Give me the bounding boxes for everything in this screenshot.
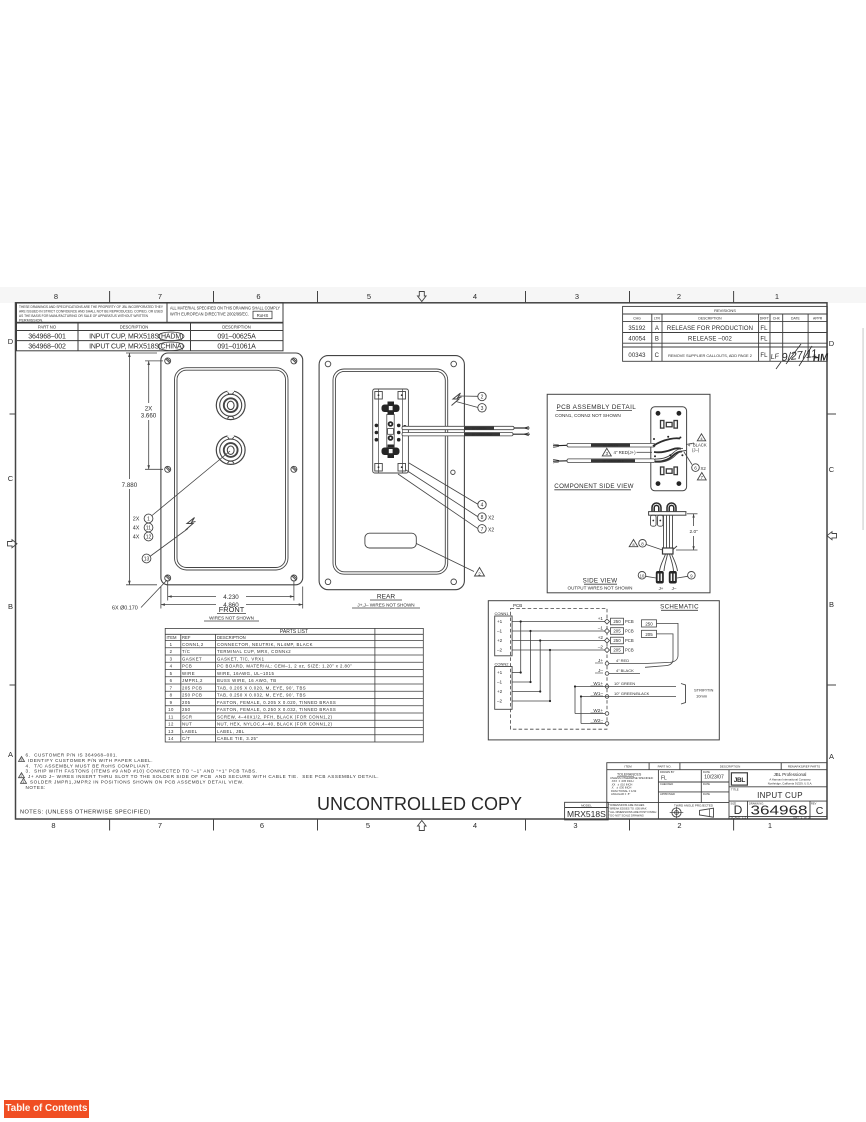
svg-text:6. CUSTOMER P/N IS 364968–001: 6. CUSTOMER P/N IS 364968–001. [26,753,118,758]
svg-text:REMOVE SUPPLIER CALLOUTS, ADD: REMOVE SUPPLIER CALLOUTS, ADD PAGE 2 [668,353,752,358]
svg-text:250: 250 [613,619,621,624]
svg-text:WIRE, 16AWG, UL–1015: WIRE, 16AWG, UL–1015 [217,671,274,676]
svg-text:PCB: PCB [625,629,634,634]
svg-text:C: C [655,353,660,359]
svg-text:9: 9 [170,700,173,705]
svg-text:FL: FL [760,337,768,343]
svg-text:THESE DRAWINGS AND SPECIFICATI: THESE DRAWINGS AND SPECIFICATIONS ARE TH… [19,305,163,309]
svg-text:C: C [816,805,824,817]
svg-text:X2: X2 [701,466,707,471]
svg-text:BUSS WIRE, 16 AWG, TB: BUSS WIRE, 16 AWG, TB [217,678,277,683]
svg-text:PCB: PCB [625,648,634,653]
svg-text:TERMINAL CUP, MRX, CONNx2: TERMINAL CUP, MRX, CONNx2 [217,649,291,654]
svg-text:14: 14 [168,736,174,741]
svg-text:PCB: PCB [513,603,522,608]
svg-text:GASKET, T/C, VRX1: GASKET, T/C, VRX1 [217,656,265,661]
svg-text:6: 6 [256,292,260,301]
svg-text:J+: J+ [659,586,664,591]
svg-text:THIRD ANGLE PROJECTED: THIRD ANGLE PROJECTED [674,804,714,808]
svg-text:–2: –2 [497,648,503,653]
svg-text:2: 2 [677,821,681,830]
svg-text:WIRES NOT SHOWN: WIRES NOT SHOWN [209,616,254,621]
svg-text:DRAWN BY: DRAWN BY [660,770,675,774]
svg-text:UNCONTROLLED COPY: UNCONTROLLED COPY [317,794,522,814]
svg-text:JBL: JBL [734,777,746,784]
svg-text:00343: 00343 [628,353,646,359]
svg-text:TAB, 0.205 X 0.020, M, EYE, 90: TAB, 0.205 X 0.020, M, EYE, 90’, TBS [217,685,306,690]
svg-text:D: D [8,337,14,346]
svg-text:+2: +2 [497,689,503,694]
svg-text:OUTPUT WIRES NOT SHOWN: OUTPUT WIRES NOT SHOWN [568,586,633,591]
svg-text:4” RED: 4” RED [616,658,629,663]
svg-text:DESCRIPTION: DESCRIPTION [217,635,246,640]
svg-text:4. T/C ASSEMBLY MUST BE RoHS: 4. T/C ASSEMBLY MUST BE RoHS COMPLIANT. [26,763,151,768]
svg-text:STRIP/TIN: STRIP/TIN [694,688,713,693]
svg-text:LABEL: LABEL [182,729,198,734]
svg-text:8: 8 [54,292,58,301]
svg-text:REAR: REAR [377,594,396,601]
svg-text:10: 10 [168,707,174,712]
svg-text:HM: HM [812,352,829,364]
svg-text:W2+: W2+ [593,708,603,713]
svg-text:ITEM: ITEM [167,635,178,640]
svg-text:* DIMENSIONS ARE INCHES: * DIMENSIONS ARE INCHES [609,803,645,807]
svg-text:REF: REF [182,635,191,640]
svg-text:–2: –2 [497,699,503,704]
svg-text:RELEASE –002: RELEASE –002 [688,337,732,343]
svg-text:35192: 35192 [628,326,646,332]
svg-text:NOTES: (UNLESS OTHERWISE SPECI: NOTES: (UNLESS OTHERWISE SPECIFIED) [20,810,151,816]
svg-text:+2: +2 [598,635,604,640]
svg-text:+1: +1 [497,670,503,675]
svg-text:2X: 2X [145,406,153,413]
svg-text:A: A [655,326,659,332]
svg-text:DESCRIPTION: DESCRIPTION [222,325,251,330]
svg-text:4X: 4X [133,535,140,541]
svg-text:* BREAK EDGES TO .005 MAX: * BREAK EDGES TO .005 MAX [609,807,647,811]
svg-text:10” GREEN: 10” GREEN [603,444,618,448]
svg-text:X2: X2 [488,516,494,522]
svg-text:ITEM: ITEM [624,764,632,768]
svg-text:3: 3 [481,406,484,412]
svg-text:J+ AND J– WIRES INSERT THRU SL: J+ AND J– WIRES INSERT THRU SLOT TO THE … [28,774,379,779]
svg-text:COMPONENT SIDE VIEW: COMPONENT SIDE VIEW [554,483,634,490]
svg-text:11: 11 [146,526,151,532]
svg-text:J–: J– [672,586,677,591]
svg-text:CABLE TIE, 3.25”: CABLE TIE, 3.25” [217,736,258,741]
svg-text:INPUT CUP, MRX518S: INPUT CUP, MRX518S [89,343,159,350]
svg-text:SCR: SCR [182,714,192,719]
svg-text:SOLDER JMPR1,JMPR2 IN POSITION: SOLDER JMPR1,JMPR2 IN POSITIONS SHOWN ON… [30,780,244,785]
svg-text:D: D [829,339,835,348]
svg-text:RoHS: RoHS [257,313,269,318]
svg-text:1: 1 [23,780,25,784]
svg-text:–1: –1 [598,626,604,631]
svg-text:Northridge, California 91329,: Northridge, California 91329, U.S.A. [768,782,813,786]
svg-text:C: C [8,474,14,483]
svg-text:DATE: DATE [703,792,710,796]
svg-text:4: 4 [170,664,173,669]
svg-text:SCREW, 4–40X1/2, PFH, BLACK (F: SCREW, 4–40X1/2, PFH, BLACK (FOR CONN1,2… [217,714,333,719]
svg-text:C/T: C/T [182,736,190,741]
svg-text:WIRE: WIRE [182,671,195,676]
svg-text:10” GREEN/BLK: 10” GREEN/BLK [602,459,624,463]
svg-text:250: 250 [645,621,653,626]
svg-text:ANGULAR ± .5°: ANGULAR ± .5° [611,792,630,796]
svg-text:+1: +1 [497,619,503,624]
svg-text:2.0”: 2.0” [689,529,698,535]
svg-text:J–: J– [598,668,603,673]
svg-text:DESCRIPTION: DESCRIPTION [698,317,722,321]
svg-text:091–00625A: 091–00625A [217,333,256,340]
svg-text:6X Ø0.170: 6X Ø0.170 [112,606,138,612]
svg-text:10” GREEN: 10” GREEN [472,426,487,430]
svg-text:7: 7 [158,292,162,301]
svg-text:DESCRIPTION: DESCRIPTION [120,325,149,330]
svg-text:4” BLACK: 4” BLACK [616,668,634,673]
svg-text:ARE ISSUED IN STRICT CONFIDENC: ARE ISSUED IN STRICT CONFIDENCE AND SHAL… [19,310,163,314]
svg-text:TOLERANCES: TOLERANCES [617,772,642,776]
svg-text:10” GREEN: 10” GREEN [614,681,635,686]
svg-text:205: 205 [613,648,621,653]
svg-text:7: 7 [481,527,484,533]
svg-text:4: 4 [473,292,477,301]
svg-text:5: 5 [21,758,23,762]
svg-text:AS THE BASIS FOR MANUFACTURING: AS THE BASIS FOR MANUFACTURING OR SALE O… [19,314,148,318]
svg-text:W2–: W2– [594,718,604,723]
svg-text:CHG: CHG [633,317,641,321]
svg-text:13: 13 [168,729,174,734]
svg-text:–1: –1 [497,629,503,634]
svg-text:8: 8 [51,821,55,830]
svg-text:INPUT CUP: INPUT CUP [757,791,803,800]
svg-text:INPUT CUP, MRX518S: INPUT CUP, MRX518S [89,333,159,340]
svg-text:4” RED(J+): 4” RED(J+) [614,450,637,455]
svg-text:250: 250 [613,638,621,643]
svg-text:091–01061A: 091–01061A [217,343,256,350]
svg-text:DRFT: DRFT [760,317,769,321]
svg-text:+2: +2 [497,638,503,643]
svg-text:MODEL: MODEL [581,804,592,808]
svg-text:10: 10 [640,573,645,578]
svg-text:250 PCB: 250 PCB [182,693,202,698]
svg-text:APPROVED: APPROVED [660,792,675,796]
svg-text:A: A [8,750,13,759]
svg-text:5: 5 [170,671,173,676]
svg-text:13: 13 [144,557,150,563]
svg-text:B: B [829,600,834,609]
svg-text:J+: J+ [598,658,603,663]
svg-text:PCB ASSEMBLY DETAIL: PCB ASSEMBLY DETAIL [557,404,637,411]
svg-text:205: 205 [645,632,653,637]
svg-text:3: 3 [573,821,577,830]
svg-text:7: 7 [170,685,173,690]
svg-text:MRX518S: MRX518S [567,809,606,819]
svg-text:364968–001: 364968–001 [28,333,66,340]
svg-text:PC BOARD, MATERIAL: CEM–1, 2 o: PC BOARD, MATERIAL: CEM–1, 2 oz, SIZE: 1… [217,664,352,669]
svg-text:JBL Professional: JBL Professional [774,772,807,777]
svg-text:X2: X2 [488,527,494,533]
svg-text:TITLE: TITLE [731,788,739,792]
svg-text:5: 5 [366,821,370,830]
svg-text:W1–: W1– [594,691,604,696]
svg-text:CHECKED: CHECKED [660,782,673,786]
svg-text:B: B [8,602,13,611]
svg-text:SCHEMATIC: SCHEMATIC [660,604,699,611]
svg-text:J+,J– WIRES NOT SHOWN: J+,J– WIRES NOT SHOWN [357,603,414,608]
svg-text:FASTON, FEMALE, 0.205 X 0.020,: FASTON, FEMALE, 0.205 X 0.020, TINNED BR… [217,700,336,705]
svg-text:6: 6 [170,678,173,683]
svg-text:10mm: 10mm [696,694,708,699]
svg-text:6: 6 [260,821,264,830]
svg-text:(J–): (J–) [692,448,700,453]
svg-text:RELEASE FOR PRODUCTION: RELEASE FOR PRODUCTION [667,326,753,332]
svg-text:2: 2 [481,395,484,401]
svg-text:CHK: CHK [773,317,781,321]
svg-text:PART NO.: PART NO. [658,764,672,768]
svg-text:IDENTIFY CUSTOMER P/N WITH PAP: IDENTIFY CUSTOMER P/N WITH PAPER LABEL. [28,758,153,763]
svg-text:6: 6 [694,466,697,471]
svg-text:3: 3 [170,656,173,661]
svg-text:12: 12 [146,535,152,541]
svg-text:10” GREEN/BLACK: 10” GREEN/BLACK [614,691,650,696]
svg-text:1: 1 [147,517,150,523]
svg-text:SIDE VIEW: SIDE VIEW [583,578,618,585]
svg-text:NOTES:: NOTES: [26,785,46,790]
svg-text:APPR: APPR [813,317,823,321]
svg-text:364968–002: 364968–002 [28,343,66,350]
svg-text:7.880: 7.880 [122,482,138,489]
svg-text:10” GREEN/BLK: 10” GREEN/BLK [472,433,493,437]
svg-text:–1: –1 [497,680,503,685]
svg-text:+1: +1 [598,616,604,621]
svg-text:PCB: PCB [182,664,192,669]
svg-text:–2: –2 [598,645,604,650]
svg-text:1: 1 [775,292,779,301]
svg-text:UNLESS OTHERWISE SPECIFIED:: UNLESS OTHERWISE SPECIFIED: [610,776,654,780]
svg-text:2: 2 [677,292,681,301]
svg-text:REVISIONS: REVISIONS [714,308,736,313]
svg-text:LF: LF [770,353,780,361]
svg-text:205: 205 [182,700,191,705]
svg-text:CONN1, CONN2 NOT SHOWN: CONN1, CONN2 NOT SHOWN [555,413,621,418]
svg-text:B: B [655,337,659,343]
svg-text:2X: 2X [133,517,140,523]
svg-text:TAB, 0.250 X 0.032, M, EYE, 90: TAB, 0.250 X 0.032, M, EYE, 90’, TBS [217,693,306,698]
svg-text:FASTON, FEMALE, 0.250 X 0.032,: FASTON, FEMALE, 0.250 X 0.032, TINNED BR… [217,707,336,712]
svg-text:1: 1 [170,642,173,647]
svg-text:NUT, HEX, NYLOC,4–40, BLACK (F: NUT, HEX, NYLOC,4–40, BLACK (FOR CONN1,2… [217,722,333,727]
svg-text:GASKET: GASKET [182,656,202,661]
svg-text:PERMISSION.: PERMISSION. [19,318,43,322]
svg-text:ALL MATERIAL SPECIFIED ON THIS: ALL MATERIAL SPECIFIED ON THIS DRAWING S… [170,306,280,311]
svg-text:CONNECTOR, NEUTRIK, NL4MP, BLA: CONNECTOR, NEUTRIK, NL4MP, BLACK [217,642,313,647]
svg-text:CONN2: CONN2 [495,662,510,667]
svg-text:PCB: PCB [625,619,634,624]
svg-text:3. SHIP WITH FASTONS (ITEMS #: 3. SHIP WITH FASTONS (ITEMS #9 AND #10) … [26,769,258,774]
svg-text:7: 7 [158,821,162,830]
svg-text:8: 8 [481,515,484,521]
svg-text:DATE: DATE [703,782,710,786]
svg-text:FRONT: FRONT [219,605,245,614]
svg-text:11: 11 [168,714,174,719]
svg-text:10/23/07: 10/23/07 [704,775,724,781]
svg-text:A: A [829,752,834,761]
svg-text:JMPR1,2: JMPR1,2 [182,678,203,683]
svg-text:W1+: W1+ [593,681,603,686]
svg-text:LTR: LTR [654,317,661,321]
svg-text:SCALE 1:2: SCALE 1:2 [731,816,747,820]
svg-text:2: 2 [170,649,173,654]
svg-text:3.660: 3.660 [141,413,157,420]
svg-text:PCB: PCB [625,638,634,643]
svg-text:250: 250 [182,707,191,712]
svg-text:DATE: DATE [791,317,801,321]
svg-text:12: 12 [168,722,174,727]
svg-text:205 PCB: 205 PCB [182,685,202,690]
svg-text:SHT 1 of 2: SHT 1 of 2 [793,816,810,820]
svg-text:LABEL, JBL: LABEL, JBL [217,729,245,734]
svg-text:FL: FL [760,326,768,332]
svg-text:* DO NOT SCALE DRAWING: * DO NOT SCALE DRAWING [609,813,644,817]
svg-text:1: 1 [768,821,772,830]
svg-text:205: 205 [613,629,621,634]
svg-text:NUT: NUT [182,722,192,727]
svg-text:* ALL DIMENSIONS ARE POST FINI: * ALL DIMENSIONS ARE POST FINISH [609,810,657,814]
svg-text:C: C [829,465,835,474]
svg-text:WITH EUROPEAN DIRECTIVE 2002/9: WITH EUROPEAN DIRECTIVE 2002/95/EC. [170,312,249,317]
svg-text:4.230: 4.230 [223,594,239,601]
svg-text:4: 4 [481,503,484,509]
svg-text:FL: FL [661,776,667,782]
svg-text:CONN1,2: CONN1,2 [182,642,204,647]
svg-text:4: 4 [473,821,477,830]
svg-text:CONN1: CONN1 [495,611,510,616]
svg-text:3: 3 [575,292,579,301]
svg-text:5: 5 [367,292,371,301]
svg-text:4X: 4X [133,526,140,532]
svg-text:8: 8 [170,693,173,698]
svg-text:2: 2 [21,774,23,778]
svg-text:FL: FL [760,353,768,359]
svg-text:T/C: T/C [182,649,190,654]
svg-text:PART NO: PART NO [38,325,57,330]
svg-text:DATE: DATE [703,770,710,774]
svg-text:REMARKS/REF PARTS: REMARKS/REF PARTS [788,764,820,768]
svg-text:PARTS LIST: PARTS LIST [280,629,308,635]
svg-text:DESCRIPTION: DESCRIPTION [720,764,741,768]
svg-text:40054: 40054 [628,337,646,343]
